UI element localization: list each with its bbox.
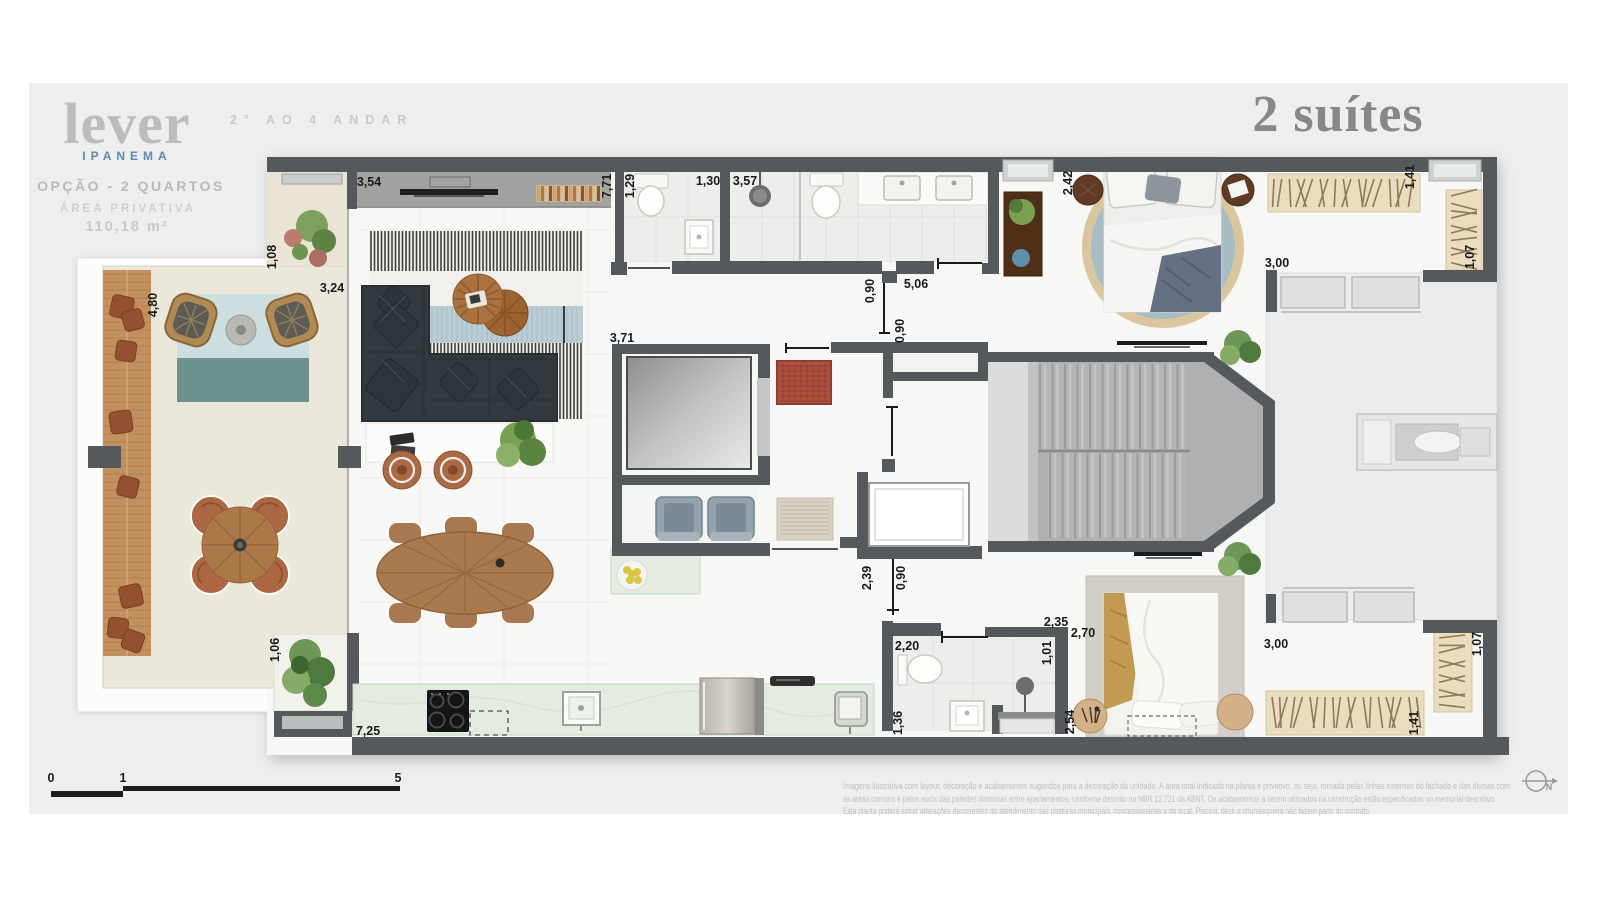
svg-text:2° AO 4 ANDAR: 2° AO 4 ANDAR bbox=[230, 113, 413, 127]
svg-text:0,90: 0,90 bbox=[863, 279, 877, 303]
svg-text:0,90: 0,90 bbox=[894, 566, 908, 590]
svg-text:1,30: 1,30 bbox=[696, 174, 720, 188]
svg-text:7,25: 7,25 bbox=[356, 724, 380, 738]
svg-text:3,71: 3,71 bbox=[610, 331, 634, 345]
svg-text:OPÇÃO - 2 QUARTOS: OPÇÃO - 2 QUARTOS bbox=[37, 177, 225, 194]
svg-text:0,90: 0,90 bbox=[893, 319, 907, 343]
svg-text:5: 5 bbox=[395, 771, 402, 785]
svg-text:3,54: 3,54 bbox=[357, 175, 381, 189]
svg-text:3,00: 3,00 bbox=[1264, 637, 1288, 651]
svg-text:1,07: 1,07 bbox=[1463, 245, 1477, 269]
svg-text:3,57: 3,57 bbox=[733, 174, 757, 188]
svg-text:2,70: 2,70 bbox=[1071, 626, 1095, 640]
svg-text:as áreas comuns e pelos eixos: as áreas comuns e pelos eixos das parede… bbox=[843, 794, 1496, 804]
svg-text:0: 0 bbox=[48, 771, 55, 785]
svg-text:3,24: 3,24 bbox=[320, 281, 344, 295]
svg-text:1,06: 1,06 bbox=[268, 638, 282, 662]
svg-text:4,80: 4,80 bbox=[146, 293, 160, 317]
svg-text:IPANEMA: IPANEMA bbox=[82, 149, 171, 163]
svg-text:1,41: 1,41 bbox=[1407, 711, 1421, 735]
svg-text:1: 1 bbox=[120, 771, 127, 785]
svg-text:2,39: 2,39 bbox=[860, 566, 874, 590]
svg-text:Imagens ilustrativa com layout: Imagens ilustrativa com layout, decoraçã… bbox=[843, 781, 1510, 791]
svg-text:1,29: 1,29 bbox=[623, 174, 637, 198]
svg-text:ÁREA PRIVATIVA: ÁREA PRIVATIVA bbox=[60, 202, 196, 215]
svg-text:7,71: 7,71 bbox=[600, 174, 614, 198]
svg-text:1,07: 1,07 bbox=[1470, 632, 1484, 656]
svg-text:lever: lever bbox=[63, 91, 190, 156]
svg-text:Esta planta poderá sofrer alte: Esta planta poderá sofrer alterações dec… bbox=[843, 806, 1371, 816]
svg-text:N: N bbox=[1546, 782, 1553, 792]
svg-text:1,01: 1,01 bbox=[1040, 641, 1054, 665]
svg-text:2,42: 2,42 bbox=[1061, 171, 1075, 195]
svg-text:2,20: 2,20 bbox=[895, 639, 919, 653]
svg-text:2,35: 2,35 bbox=[1044, 615, 1068, 629]
svg-text:5,06: 5,06 bbox=[904, 277, 928, 291]
svg-text:110,18 m²: 110,18 m² bbox=[85, 219, 168, 235]
svg-text:3,00: 3,00 bbox=[1265, 256, 1289, 270]
svg-text:1,08: 1,08 bbox=[265, 245, 279, 269]
svg-text:2,54: 2,54 bbox=[1063, 710, 1077, 734]
svg-text:1,36: 1,36 bbox=[891, 711, 905, 735]
svg-text:2 suítes: 2 suítes bbox=[1252, 86, 1423, 143]
svg-text:1,41: 1,41 bbox=[1403, 165, 1417, 189]
